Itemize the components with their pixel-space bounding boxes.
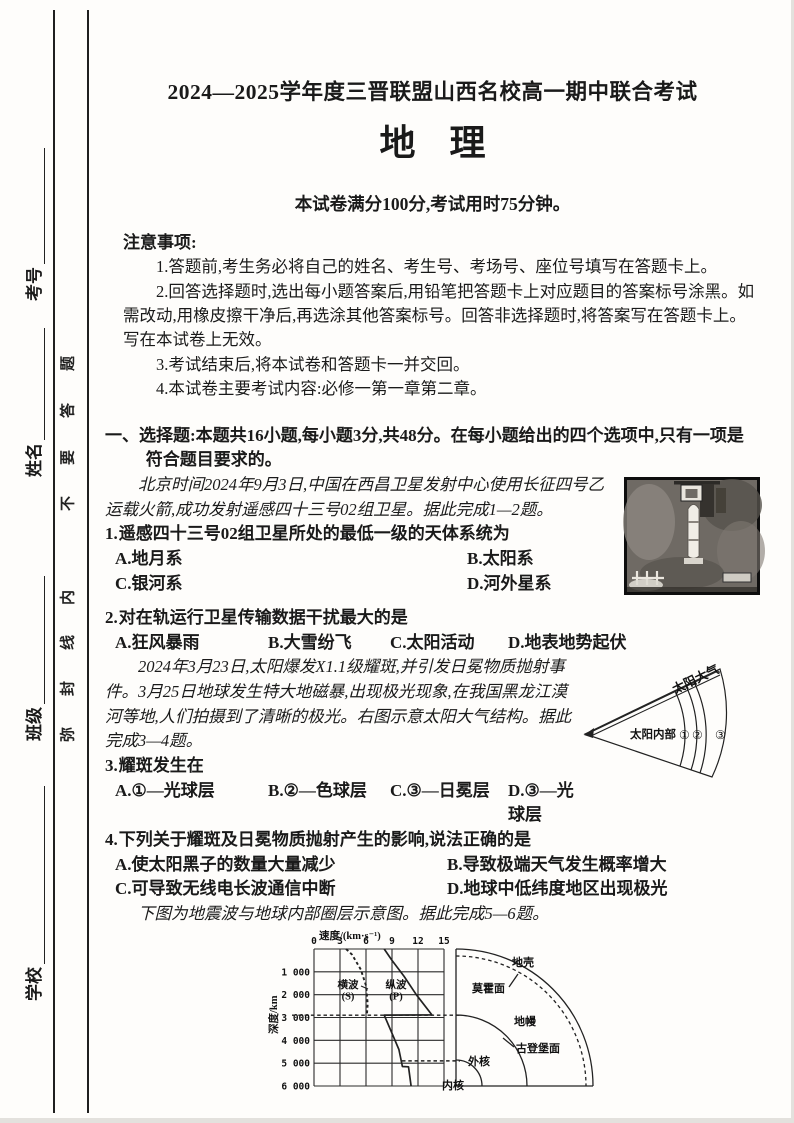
sun-atmosphere-graphic: 太阳大气 太阳内部 ① ② ③ xyxy=(580,655,760,793)
question-number: 2. xyxy=(105,608,118,627)
notice-item: 1.答题前,考生务必将自己的姓名、考生号、考场号、座位号填写在答题卡上。 xyxy=(123,255,760,279)
blank-line xyxy=(31,576,45,704)
sun-interior-label: 太阳内部 xyxy=(629,727,676,741)
svg-text:0: 0 xyxy=(311,936,317,947)
question-stem: 对在轨运行卫星传输数据干扰最大的是 xyxy=(119,608,408,627)
notice-title: 注意事项: xyxy=(123,230,760,255)
option-a: A.狂风暴雨 xyxy=(115,631,268,656)
seal-char: 不 xyxy=(57,495,78,513)
option-a: A.地月系 xyxy=(115,547,467,572)
exam-info: 本试卷满分100分,考试用时75分钟。 xyxy=(105,191,760,216)
seal-field-school: 学校 xyxy=(20,786,45,1001)
question-2: 2.对在轨运行卫星传输数据干扰最大的是 xyxy=(105,606,760,631)
seal-char: 线 xyxy=(57,634,78,652)
option-d: D.地表地势起伏 xyxy=(508,631,760,656)
blank-line xyxy=(31,328,45,440)
rocket-launch-photo xyxy=(624,477,760,600)
seal-char: 弥 xyxy=(57,726,78,744)
passage-seismic: 下图为地震波与地球内部圈层示意图。据此完成5—6题。 xyxy=(105,902,760,927)
svg-text:4 000: 4 000 xyxy=(281,1036,310,1047)
svg-text:2 000: 2 000 xyxy=(281,990,310,1001)
option-d: D.河外星系 xyxy=(467,572,610,597)
section-heading: 一、选择题:本题共16小题,每小题3分,共48分。在每小题给出的四个选项中,只有… xyxy=(105,424,760,473)
seal-field-name: 姓名 xyxy=(20,328,45,477)
question-number: 3. xyxy=(105,756,118,775)
question-4: 4.下列关于耀斑及日冕物质抛射产生的影响,说法正确的是 xyxy=(105,828,760,853)
seal-inner-line xyxy=(53,10,55,1113)
block-q1-q2: 北京时间2024年9月3日,中国在西昌卫星发射中心使用长征四号乙运载火箭,成功发… xyxy=(105,473,760,655)
option-c: C.太阳活动 xyxy=(390,631,508,656)
seal-field-class: 班级 xyxy=(20,576,45,741)
option-a: A.使太阳黑子的数量大量减少 xyxy=(115,853,447,878)
option-b: B.太阳系 xyxy=(467,547,610,572)
svg-text:9: 9 xyxy=(389,936,395,947)
seismic-wave-earth-interior-graphic: 036912151 0002 0003 0004 0005 0006 000 速… xyxy=(264,931,602,1109)
s-wave-label: 横波(S) xyxy=(337,978,358,1003)
question-number: 4. xyxy=(105,830,118,849)
option-b: B.导致极端天气发生概率增大 xyxy=(447,853,760,878)
seal-char: 答 xyxy=(57,402,78,420)
seal-field-exam-number: 考号 xyxy=(20,148,45,301)
blank-line xyxy=(31,148,45,264)
block-q3: 太阳大气 太阳内部 ① ② ③ 2024年3月23日,太阳爆发X1.1级耀斑,并… xyxy=(105,655,760,828)
option-a: A.①—光球层 xyxy=(115,779,268,828)
crust-label: 地壳 xyxy=(512,955,534,969)
question-number: 1. xyxy=(105,524,118,543)
question-1-options: A.地月系 B.太阳系 C.银河系 D.河外星系 xyxy=(115,547,610,596)
x-axis-label: 速度/(km·s⁻¹) xyxy=(319,929,381,942)
notice-block: 注意事项: 1.答题前,考生务必将自己的姓名、考生号、考场号、座位号填写在答题卡… xyxy=(123,230,760,402)
svg-text:1 000: 1 000 xyxy=(281,967,310,978)
notice-item: 2.回答选择题时,选出每小题答案后,用铅笔把答题卡上对应题目的答案标号涂黑。如需… xyxy=(123,280,760,353)
option-d: D.③—光球层 xyxy=(508,779,574,828)
svg-text:15: 15 xyxy=(438,936,450,947)
notice-item: 4.本试卷主要考试内容:必修一第一章第二章。 xyxy=(123,377,760,401)
gutenberg-label: 古登堡面 xyxy=(516,1041,560,1055)
sun-atmosphere-label: 太阳大气 xyxy=(670,661,722,697)
svg-text:5 000: 5 000 xyxy=(281,1058,310,1069)
seal-char: 封 xyxy=(57,680,78,698)
seal-field-label: 姓名 xyxy=(20,443,45,477)
notice-item: 3.考试结束后,将本试卷和答题卡一并交回。 xyxy=(123,353,760,377)
layer-3-badge: ③ xyxy=(715,728,726,742)
moho-label: 莫霍面 xyxy=(471,981,505,995)
layer-1-badge: ① xyxy=(679,728,690,742)
question-stem: 下列关于耀斑及日冕物质抛射产生的影响,说法正确的是 xyxy=(119,830,531,849)
exam-content: 2024—2025学年度三晋联盟山西名校高一期中联合考试 地理 本试卷满分100… xyxy=(105,0,760,1123)
question-2-options: A.狂风暴雨 B.大雪纷飞 C.太阳活动 D.地表地势起伏 xyxy=(115,631,760,656)
question-3-options: A.①—光球层 B.②—色球层 C.③—日冕层 D.③—光球层 xyxy=(115,779,574,828)
option-c: C.③—日冕层 xyxy=(390,779,508,828)
seal-field-label: 班级 xyxy=(20,707,45,741)
blank-line xyxy=(31,786,45,964)
p-wave-label: 纵波(P) xyxy=(385,978,406,1003)
question-stem: 遥感四十三号02组卫星所处的最低一级的天体系统为 xyxy=(119,524,510,543)
question-stem: 耀斑发生在 xyxy=(119,756,204,775)
option-b: B.②—色球层 xyxy=(268,779,390,828)
seal-char: 题 xyxy=(57,355,78,373)
svg-text:12: 12 xyxy=(412,936,423,947)
seal-char: 内 xyxy=(57,589,78,607)
option-c: C.银河系 xyxy=(115,572,467,597)
mantle-label: 地幔 xyxy=(514,1014,537,1028)
option-d: D.地球中低纬度地区出现极光 xyxy=(447,877,760,902)
seal-field-label: 学校 xyxy=(20,967,45,1001)
earth-interior-quarter: 地壳 莫霍面 地幔 古登堡面 外核 内核 xyxy=(442,949,593,1092)
option-b: B.大雪纷飞 xyxy=(268,631,390,656)
block-q4: 4.下列关于耀斑及日冕物质抛射产生的影响,说法正确的是 A.使太阳黑子的数量大量… xyxy=(105,828,760,927)
exam-page: 考号 姓名 班级 学校 题 答 要 不 内 线 封 弥 2024—2025学年度… xyxy=(0,0,794,1123)
seal-outer-line xyxy=(87,10,89,1113)
inner-core-label: 内核 xyxy=(442,1078,464,1092)
outer-core-label: 外核 xyxy=(467,1054,490,1068)
sun-atmosphere-figure: 太阳大气 太阳内部 ① ② ③ xyxy=(580,655,760,798)
question-4-options: A.使太阳黑子的数量大量减少 B.导致极端天气发生概率增大 C.可导致无线电长波… xyxy=(115,853,760,902)
seismic-figure: 036912151 0002 0003 0004 0005 0006 000 速… xyxy=(105,931,760,1114)
subject-title: 地理 xyxy=(105,114,760,166)
seal-char: 要 xyxy=(57,449,78,467)
seal-field-label: 考号 xyxy=(20,267,45,301)
option-c: C.可导致无线电长波通信中断 xyxy=(115,877,447,902)
y-axis-label: 深度/km xyxy=(267,995,280,1034)
rocket-photo-graphic xyxy=(624,477,760,595)
layer-2-badge: ② xyxy=(692,728,703,742)
exam-title: 2024—2025学年度三晋联盟山西名校高一期中联合考试 xyxy=(105,75,760,106)
svg-text:6 000: 6 000 xyxy=(281,1081,310,1092)
